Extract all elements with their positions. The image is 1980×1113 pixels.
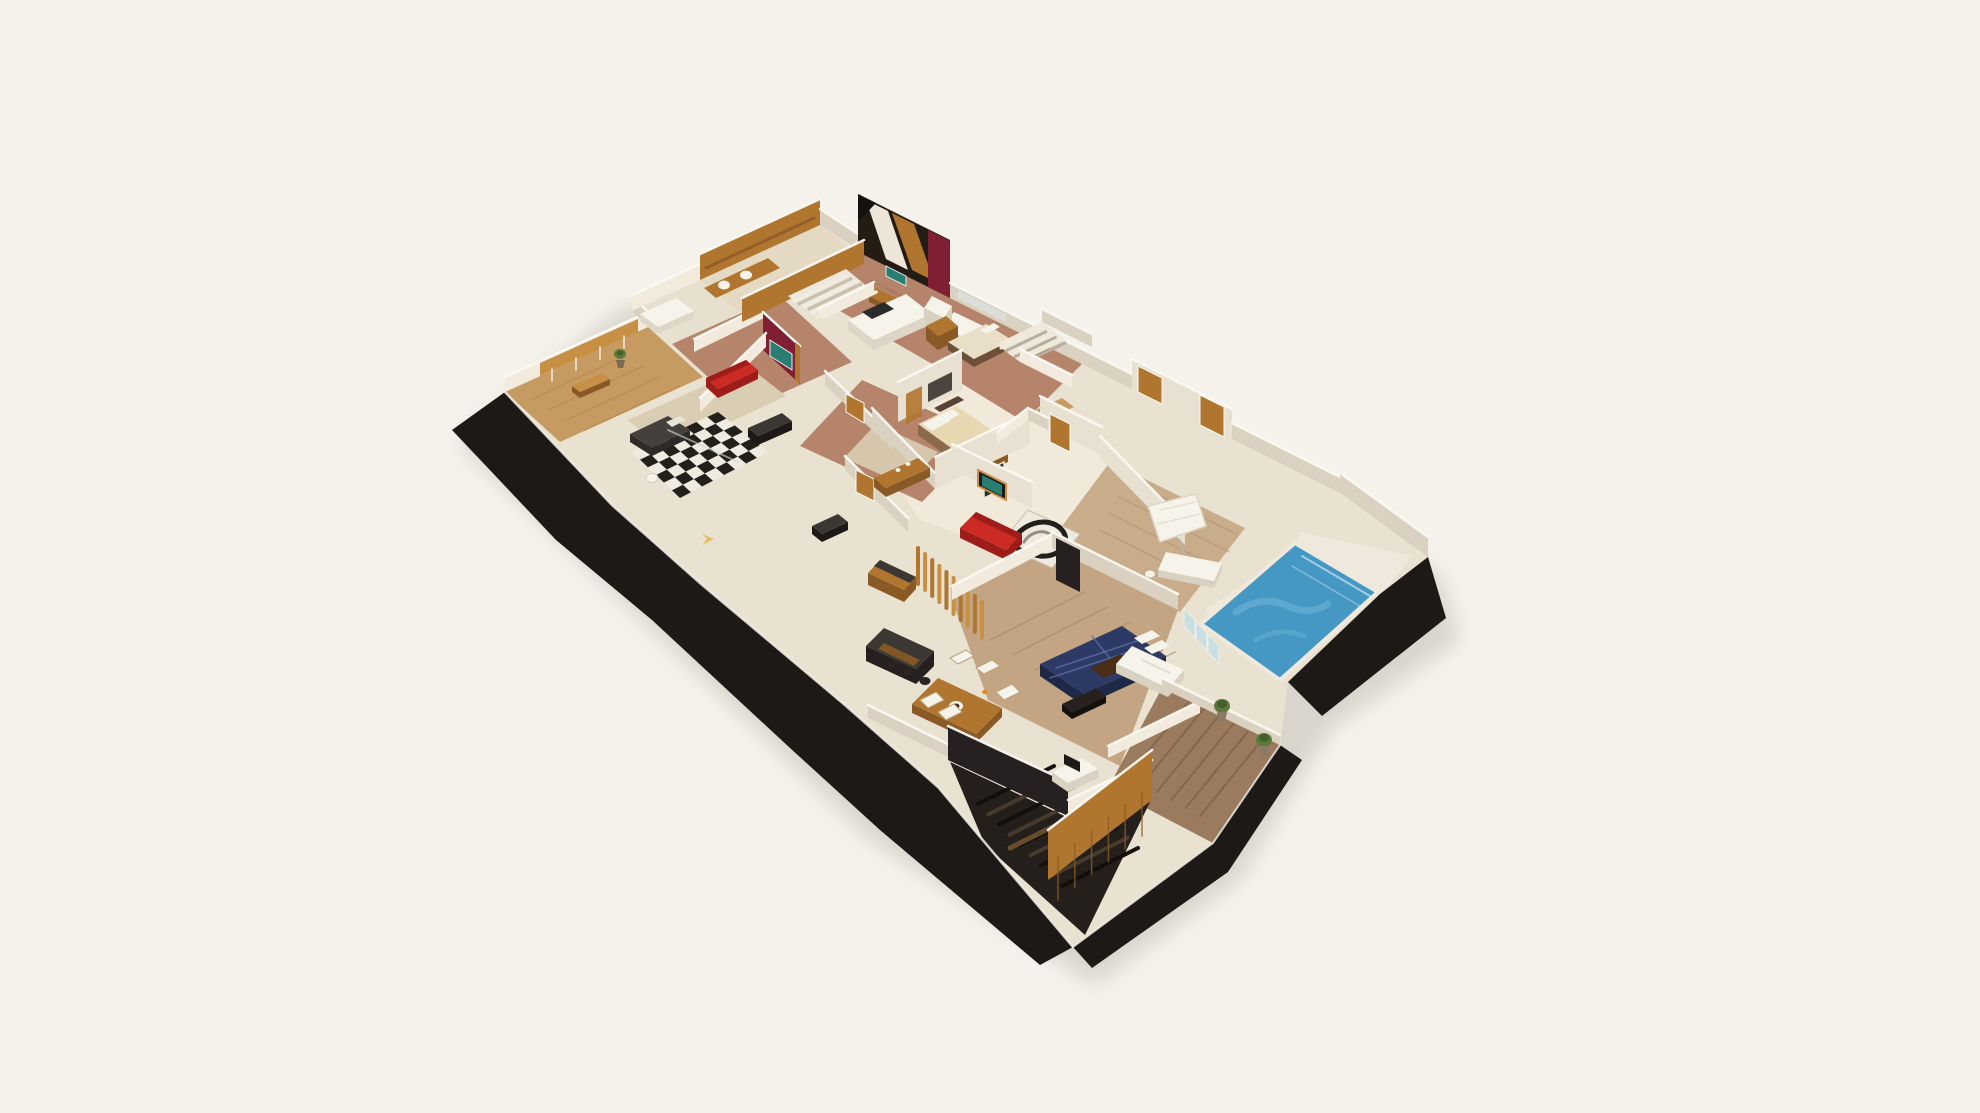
bar-stool-1 <box>888 660 899 668</box>
screenshot-canvas <box>0 0 1980 1113</box>
bar-stool-3 <box>920 677 931 685</box>
art-panel-maroon-band <box>928 230 950 298</box>
side-table <box>1145 571 1155 578</box>
balcony-plant-1-core <box>1217 700 1227 708</box>
sink-1 <box>718 281 730 290</box>
tv-alcove-wood-strip <box>795 342 800 384</box>
sink-2 <box>740 271 752 280</box>
bar-stool-2 <box>904 668 915 676</box>
balcony-plant-2-core <box>1259 734 1269 742</box>
sideboard-vase-2 <box>906 462 911 466</box>
floorplan-3d-render <box>0 0 1980 1113</box>
fruit-bowl <box>982 690 988 694</box>
desk-chair <box>1038 784 1054 796</box>
entry-plant-core <box>617 351 624 356</box>
sideboard-vase-1 <box>896 468 901 472</box>
toilet <box>646 474 658 483</box>
render-root <box>0 0 1980 1113</box>
